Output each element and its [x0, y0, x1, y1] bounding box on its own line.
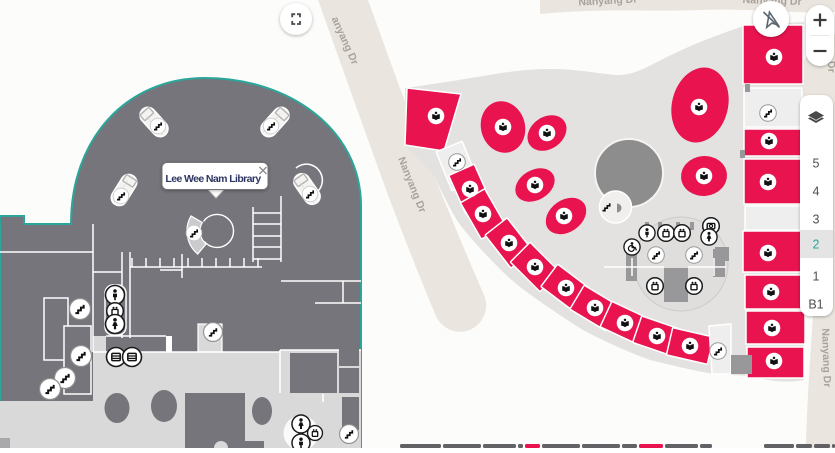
svg-text:1: 1: [813, 270, 820, 284]
svg-text:Nanyang Dr: Nanyang Dr: [819, 328, 833, 387]
svg-text:2: 2: [813, 238, 820, 252]
svg-text:Lee Wee Nam Library: Lee Wee Nam Library: [165, 173, 261, 185]
svg-text:5: 5: [813, 157, 820, 171]
svg-text:4: 4: [813, 185, 820, 199]
svg-text:B1: B1: [808, 298, 823, 312]
svg-text:3: 3: [813, 213, 820, 227]
